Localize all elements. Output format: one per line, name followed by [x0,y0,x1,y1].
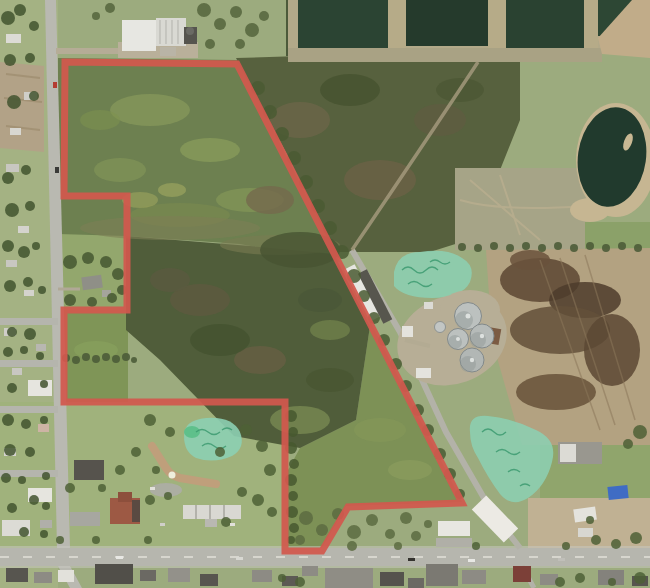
blue-roof-building [607,485,628,500]
plowed-dark-patches-blob [516,374,596,410]
field-mottles-blob [180,138,240,162]
trees-farmstead-dot [100,256,112,268]
hedgerow-midwest-field-dot [92,355,100,363]
trees-southwest-campus-dot [252,494,264,506]
retention-pond-1 [298,0,390,50]
trees-southwest-campus-dot [164,492,172,500]
trees-west-strip-dot [5,203,19,217]
trees-scrub-south-dot [400,512,412,524]
trees-southwest-campus-dot [237,487,247,497]
trees-scrub-south-dot [385,529,395,539]
south-row-buildings-item [95,564,133,584]
trees-southwest-campus-dot [56,536,64,544]
west-houses-item [24,290,34,296]
south-row-buildings-item [140,570,156,581]
trees-west-strip-dot [21,165,31,175]
woods-texture-patches-blob [320,74,380,106]
vehicles-item [160,523,165,526]
woods-texture-patches-blob [298,288,342,312]
south-row-buildings-item [200,574,218,586]
trees-west-strip-dot [19,527,29,537]
west-houses-item [10,128,21,135]
trees-west-strip-dot [36,352,44,360]
trees-southwest-campus-dot [267,507,277,517]
trees-farmstead-dot [63,255,77,269]
trees-scrub-south-dot [411,531,421,541]
trees-southeast-dot [630,532,642,544]
berm-strip-1 [388,0,406,52]
hedgerow-east-dot [506,244,514,252]
trees-southwest-campus-dot [215,447,225,457]
silo-shading-blob [460,356,476,372]
parking-lot-west [70,512,100,526]
trees-west-strip-dot [14,4,26,16]
trees-southeast-dot [634,572,646,584]
commercial-lot [436,538,472,547]
trees-farmstead-dot [64,294,76,306]
trees-west-strip-dot [7,503,17,513]
trees-top-edge-dot [235,39,245,49]
south-row-buildings-item [408,578,424,588]
trees-west-strip-dot [7,327,17,337]
trees-top-edge-dot [92,12,100,20]
dark-roof-building-west [74,460,104,480]
trees-west-strip-dot [42,472,50,480]
southeast-gravel-yard [528,498,650,550]
factory-tank [186,27,194,35]
field-mottles-blob [158,183,186,197]
trees-top-edge-dot [230,6,242,18]
trees-farmstead-dot [82,252,94,264]
trees-west-strip-dot [29,21,39,31]
trees-top-edge-dot [197,3,211,17]
woods-texture-patches-blob [190,324,250,356]
trees-west-strip-dot [29,495,39,505]
commercial-building-white [438,521,470,536]
dirt-band-field-edge-blob [80,216,260,240]
trees-top-edge-dot [205,39,215,49]
hedgerow-east-dot [618,242,626,250]
trees-southwest-campus-dot [152,466,160,474]
south-row-buildings-item [6,568,28,582]
trees-west-strip-dot [18,246,30,258]
trees-boundary-corridor-dot [289,459,299,469]
industrial-driveway [56,48,118,54]
south-row-buildings-item [325,568,373,588]
hedgerow-east-dot [474,244,482,252]
trees-top-edge-dot [214,18,226,30]
trees-top-edge-dot [105,3,115,13]
aerial-map-canvas [0,0,650,588]
trees-west-strip-dot [24,328,36,340]
trees-southeast-dot [633,425,647,439]
trees-west-strip-dot [4,280,16,292]
vehicles-item [468,559,475,562]
apartment-building [183,505,241,519]
trees-west-strip-dot [1,473,11,483]
silo-shading-blob [455,311,473,329]
vehicles-item [150,487,155,490]
south-row-buildings-item [380,572,404,586]
berm-strip-2 [488,0,506,50]
trees-southeast-dot [575,573,585,583]
trees-west-strip-dot [2,172,14,184]
trees-southeast-dot [295,577,305,587]
trees-west-strip-dot [7,383,17,393]
factory-south-shed [160,47,176,56]
trees-west-strip-dot [7,95,21,109]
trees-southwest-campus-dot [92,536,100,544]
trees-southwest-campus-dot [131,447,141,457]
farmhouse [81,275,103,291]
trees-west-strip-dot [29,91,39,101]
trees-southeast-dot [611,539,621,549]
hedgerow-midwest-field-dot [131,357,137,363]
trees-west-strip-dot [21,419,31,429]
apartment-south-stub [205,519,217,527]
hedgerow-east-dot [554,242,562,250]
field-mottles-blob [354,418,406,442]
hedgerow-midwest-field-dot [122,353,130,361]
plowed-dark-patches-blob [584,314,640,386]
trees-southeast-dot [472,542,480,550]
trees-farmstead-dot [107,293,117,303]
berm-bottom [288,48,602,62]
trees-west-strip-dot [18,476,26,484]
field-mottles-blob [80,110,120,130]
trees-southwest-campus-dot [98,484,106,492]
west-houses-item [6,260,17,267]
east-warehouse-white-part [560,444,576,462]
curved-building-rotunda [169,472,176,479]
trees-southwest-campus-dot [165,427,175,437]
west-houses-item [28,380,52,396]
retention-pond-3 [504,0,586,54]
trees-scrub-south-dot [347,525,361,539]
trees-southwest-campus-dot [65,483,75,493]
trees-southwest-campus-dot [221,517,231,527]
marsh-pond-west [184,418,242,461]
hedgerow-east-dot [458,243,466,251]
trees-southeast-dot [562,542,570,550]
hedgerow-east-dot [538,244,546,252]
field-mottles-blob [94,158,146,182]
field-mottles-blob [310,320,350,340]
satellite-image [0,0,650,588]
south-row-buildings-item [34,572,52,583]
trees-southeast-dot [623,439,633,449]
hedgerow-east-dot [586,242,594,250]
vehicles-item [230,523,235,526]
trees-southeast-dot [586,516,594,524]
trees-west-strip-dot [40,530,48,538]
hedgerow-east-dot [634,244,642,252]
vehicles-item [558,558,565,561]
silo-shed-1 [402,326,413,337]
west-houses-item [6,164,19,172]
marsh-pond-west-bright-patch [184,426,200,438]
trees-scrub-south-dot [424,520,432,528]
woods-texture-patches-blob [344,160,416,200]
silo-caps-dot [480,334,484,338]
hedgerow-midwest-field-dot [82,353,90,361]
trees-scrub-south-dot [299,511,313,525]
woods-texture-patches-blob [306,368,354,392]
trees-southeast-dot [278,574,286,582]
silo-caps-dot [470,358,474,362]
trees-boundary-corridor-dot [289,523,299,533]
woods-texture-patches-blob [246,186,294,214]
trees-west-strip-dot [2,240,14,252]
trees-farmstead-dot [87,297,97,307]
trees-west-strip-dot [4,444,16,456]
trees-west-strip-dot [32,242,40,250]
silo-shed-2 [416,368,431,378]
trees-southeast-dot [608,578,616,586]
trees-west-strip-dot [23,277,33,287]
south-row-buildings-item [513,566,531,582]
south-row-buildings-item [168,568,190,582]
trees-top-edge-dot [259,11,269,21]
west-houses-item [18,226,29,233]
factory-building-west [122,20,156,51]
south-row-buildings-item [58,570,74,582]
field-mottles-blob [388,460,432,480]
trees-scrub-south-dot [316,524,328,536]
trees-west-strip-dot [2,414,14,426]
west-houses-item [6,34,21,43]
trees-west-strip-dot [4,54,16,66]
hedgerow-midwest-field-dot [72,356,80,364]
trees-west-strip-dot [38,286,46,294]
hedgerow-east-dot [602,244,610,252]
vehicles-item [408,558,415,561]
vehicles-item [53,82,57,88]
side-street-3 [0,406,58,413]
trees-southwest-campus-dot [145,495,155,505]
trees-southwest-campus-dot [264,464,276,476]
plowed-dark-patches-blob [510,250,550,270]
scrub-field-east [455,168,587,250]
brick-building-dark-section [132,500,140,522]
south-row-buildings-item [252,570,272,582]
trees-southwest-campus-dot [256,440,268,452]
brick-building-wing [118,492,132,502]
trees-farmstead-dot [112,268,124,280]
west-houses-item [38,424,49,432]
field-mottles-blob [110,94,190,126]
hedgerow-midwest-field-dot [112,355,120,363]
silo-caps-dot [466,314,471,319]
trees-west-strip-dot [40,416,48,424]
trees-scrub-south-dot [347,541,357,551]
hedgerow-east-dot [570,244,578,252]
trees-west-strip-dot [25,447,35,457]
trees-southwest-campus-dot [144,414,156,426]
trees-west-strip-dot [25,201,35,211]
side-street-2 [0,360,58,367]
trees-southwest-campus-dot [115,465,125,475]
trees-boundary-corridor-dot [288,427,298,437]
south-row-buildings-item [426,564,458,586]
side-street-1 [0,318,58,325]
west-houses-item [12,368,22,375]
west-houses-item [40,520,52,528]
woods-texture-patches-blob [150,268,190,292]
silo-shading-blob [470,332,486,348]
field-mottles-blob [270,406,330,434]
hedgerow-midwest-field-dot [102,353,110,361]
vehicles-item [55,167,59,173]
trees-southwest-campus-dot [240,424,252,436]
trees-scrub-south-dot [295,535,305,545]
silo-shed-3 [424,302,433,309]
trees-scrub-south-dot [394,542,402,550]
trees-west-strip-dot [25,53,35,63]
trees-west-strip-dot [20,346,28,354]
hedgerow-east-dot [522,242,530,250]
vehicles-item [116,556,123,559]
trees-west-strip-dot [3,347,13,357]
trees-boundary-corridor-dot [288,491,298,501]
west-houses-item [36,344,46,351]
trees-west-strip-dot [40,380,48,388]
trees-top-edge-dot [245,23,259,37]
silo-shading-blob [448,335,462,349]
trees-west-strip-dot [42,502,50,510]
trees-west-strip-dot [1,11,15,25]
south-row-buildings-item [462,570,486,584]
trees-southeast-dot [591,535,601,545]
small-tank [435,322,446,333]
trees-southwest-campus-dot [144,536,152,544]
trees-scrub-south-dot [366,514,378,526]
white-shed-east-2 [578,528,593,537]
vehicles-item [236,557,243,560]
south-row-buildings-item [302,566,318,576]
hedgerow-east-dot [490,242,498,250]
silo-caps-dot [456,337,460,341]
marsh-pond-east [394,251,472,298]
trees-southeast-dot [555,577,565,587]
retention-pond-2 [404,0,490,46]
